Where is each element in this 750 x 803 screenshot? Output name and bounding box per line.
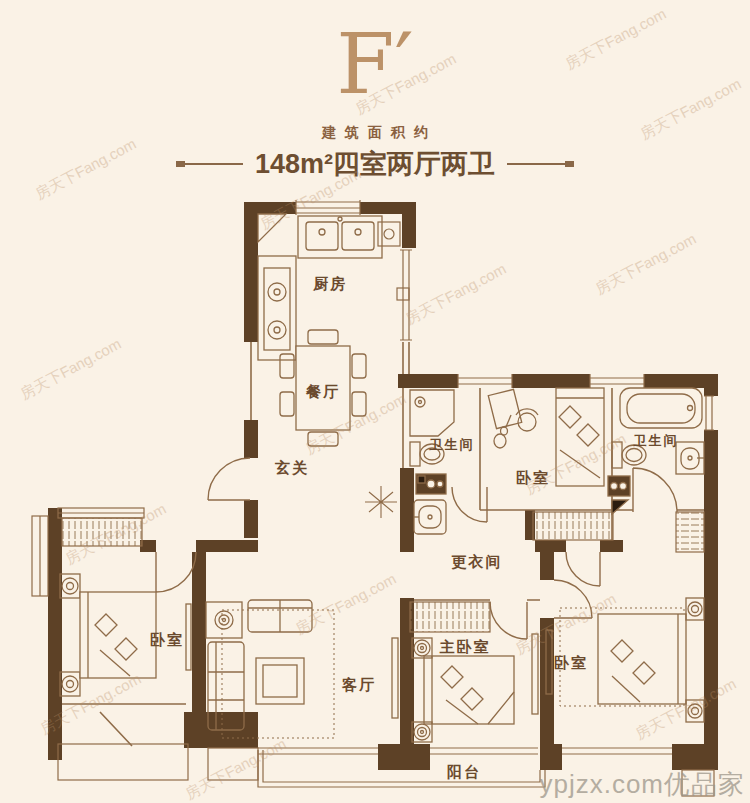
side-table xyxy=(206,602,242,638)
label-kitchen: 厨房 xyxy=(312,275,347,292)
lamp xyxy=(62,676,78,692)
toilet-bowl-inner xyxy=(626,449,642,462)
corner-shelf xyxy=(612,500,628,514)
chair xyxy=(308,330,338,344)
coffee-table-inner xyxy=(263,665,297,697)
door-bath-right xyxy=(633,468,677,512)
wall xyxy=(540,744,562,770)
shower xyxy=(410,390,454,436)
laundry-drum xyxy=(437,481,443,487)
door-bedroom-right xyxy=(554,580,592,618)
lamp xyxy=(688,602,702,616)
bed xyxy=(424,656,514,724)
door-bedroom-top xyxy=(566,552,600,586)
lamp xyxy=(692,708,699,715)
window-bath-right-north xyxy=(590,374,644,388)
door-bedroom-left xyxy=(156,552,196,592)
sink-basin xyxy=(306,222,338,250)
chair xyxy=(308,432,338,446)
kitchen-corner-chamfer xyxy=(258,214,286,242)
floorplan-page: F′ 建筑面积约 148m²四室两厅两卫 xyxy=(0,0,750,803)
window-kitchen-top xyxy=(296,200,360,215)
kitchen-stove xyxy=(258,256,296,360)
wall xyxy=(540,552,554,580)
chair xyxy=(280,392,294,416)
label-master: 主卧室 xyxy=(440,638,491,655)
faucet xyxy=(338,217,342,221)
flue-box xyxy=(378,222,400,246)
label-dressing: 更衣间 xyxy=(452,553,503,570)
flue-circle xyxy=(384,229,394,239)
wall xyxy=(398,374,458,388)
kitchen-sink-counter xyxy=(298,216,382,258)
laundry-drum xyxy=(611,483,618,490)
label-balcony: 阳台 xyxy=(447,763,481,780)
wall xyxy=(378,744,430,770)
lamp xyxy=(414,640,430,656)
label-dining: 餐厅 xyxy=(305,383,340,400)
shower-drain xyxy=(415,397,425,407)
lamp xyxy=(414,724,430,740)
chair xyxy=(352,354,366,378)
wall xyxy=(244,202,258,342)
pillow xyxy=(559,406,581,428)
label-living: 客厅 xyxy=(341,676,376,693)
pillar-living-south xyxy=(208,748,258,780)
burner xyxy=(268,283,286,301)
wall xyxy=(672,744,718,770)
lamp xyxy=(215,611,233,629)
lamp xyxy=(223,619,226,622)
burner-center xyxy=(274,289,280,295)
label-bedroom-left: 卧室 xyxy=(150,631,184,648)
floor-plan-svg: 厨房 餐厅 玄关 卫生间 卧室 卫生间 更衣间 卧室 客厅 主卧室 卧室 阳台 xyxy=(0,0,750,803)
nightstand xyxy=(412,722,432,742)
label-foyer: 玄关 xyxy=(274,459,309,476)
burner-center xyxy=(274,327,280,333)
basin-drain xyxy=(428,515,432,519)
wall xyxy=(48,508,62,760)
window-bedroom-right-south xyxy=(562,748,672,754)
sink-basin xyxy=(342,222,374,250)
pillow xyxy=(461,688,483,710)
window-living-south xyxy=(258,748,378,754)
bed xyxy=(598,614,686,704)
wall xyxy=(704,430,718,760)
bath-middle-fixtures xyxy=(410,390,454,534)
wardrobe-master xyxy=(410,602,490,632)
guitar-body xyxy=(494,434,506,448)
drain xyxy=(355,229,361,235)
nightstand xyxy=(686,700,704,722)
label-bath-right: 卫生间 xyxy=(633,433,679,448)
wall xyxy=(535,540,566,552)
quilt-line xyxy=(560,450,600,478)
wall xyxy=(192,552,206,712)
toilet-tank xyxy=(612,442,622,468)
high-window-bedroom-left xyxy=(58,508,144,518)
bath-right-fixtures xyxy=(608,388,704,514)
window-kitchen-east xyxy=(400,250,412,340)
lamp xyxy=(67,583,74,590)
furniture xyxy=(60,216,704,742)
basin-inner xyxy=(419,506,441,528)
pillow xyxy=(577,424,599,446)
lamp xyxy=(219,615,229,625)
lamp xyxy=(67,681,74,688)
basin-drain xyxy=(688,456,692,460)
wall xyxy=(512,374,590,388)
tv-panel xyxy=(532,634,538,714)
bay-window-southwest xyxy=(58,744,188,780)
drain xyxy=(319,229,325,235)
laundry-drum xyxy=(427,480,435,488)
wall xyxy=(600,540,623,552)
chair xyxy=(352,392,366,416)
tv-panel xyxy=(392,638,398,718)
nightstand xyxy=(686,598,704,620)
pillow xyxy=(441,666,463,688)
cooktop xyxy=(264,268,290,350)
wall xyxy=(644,374,718,388)
burner xyxy=(268,321,286,339)
label-bedroom-right: 卧室 xyxy=(554,654,588,671)
lamp xyxy=(418,728,427,737)
laundry-hob xyxy=(418,476,425,483)
lamp xyxy=(688,704,702,718)
lamp xyxy=(421,647,424,650)
lamp xyxy=(62,578,78,594)
window-bedroom-top-north xyxy=(458,374,512,388)
nightstand xyxy=(412,638,432,658)
wall xyxy=(402,214,416,248)
desk xyxy=(488,389,521,428)
wall xyxy=(244,420,258,458)
lamp xyxy=(421,731,424,734)
door-master xyxy=(490,602,527,639)
toilet-tank xyxy=(410,442,420,466)
door-entry xyxy=(208,458,250,500)
bay-window-west xyxy=(32,516,48,596)
pillar-bedroom-right-south xyxy=(682,770,714,796)
bathtub-inner xyxy=(627,394,695,423)
door-bath-middle xyxy=(452,487,487,522)
wardrobe-bedroom-left xyxy=(62,518,142,546)
label-bath-middle: 卫生间 xyxy=(429,437,475,452)
lamp xyxy=(418,644,427,653)
wall xyxy=(400,468,414,552)
basin-inner xyxy=(681,448,699,469)
wardrobe-dressing-east xyxy=(676,512,704,552)
wardrobe-dressing-north xyxy=(533,512,613,540)
wall xyxy=(244,500,258,538)
plant xyxy=(365,486,397,518)
laundry-drum xyxy=(620,483,627,490)
tv-panel xyxy=(186,604,191,670)
guitar-upper xyxy=(501,427,508,435)
label-bedroom-top: 卧室 xyxy=(516,469,550,486)
window-master-south xyxy=(430,748,538,754)
lamp xyxy=(692,606,699,613)
tub-drain xyxy=(688,406,693,411)
wall xyxy=(704,386,718,396)
shower-drain-center xyxy=(419,401,422,404)
flue-duct xyxy=(378,222,400,246)
window-bath-right-east xyxy=(704,396,714,430)
chair xyxy=(280,354,294,378)
wall xyxy=(196,540,258,552)
